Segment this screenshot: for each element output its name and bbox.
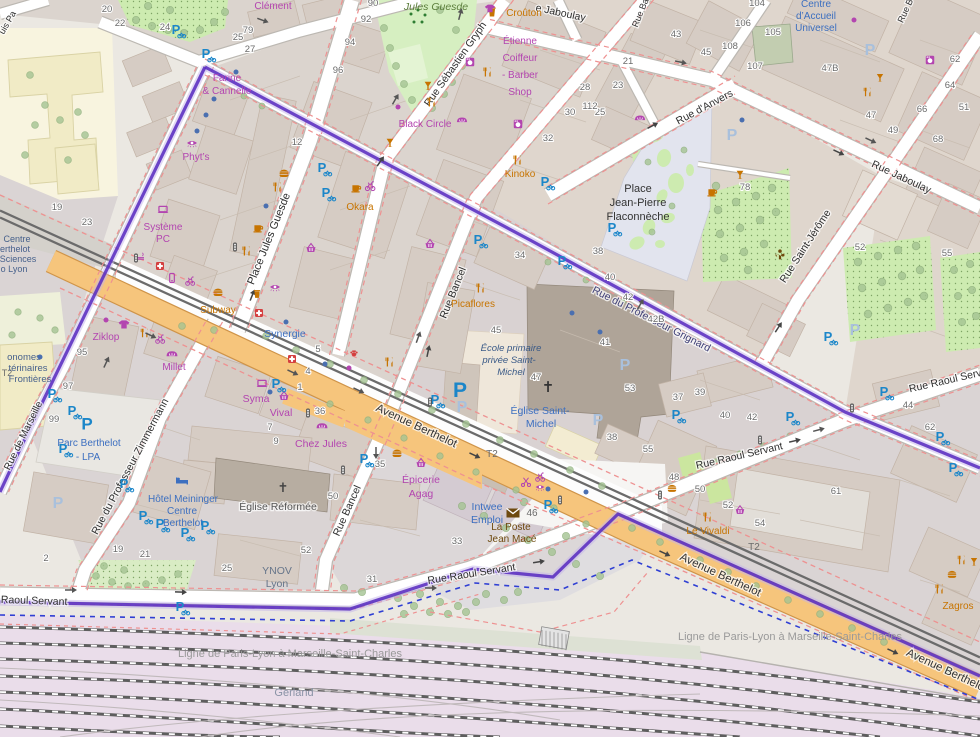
svg-text:23: 23 — [613, 80, 624, 91]
svg-text:48: 48 — [669, 472, 680, 483]
svg-text:43: 43 — [671, 29, 682, 40]
svg-text:19: 19 — [52, 202, 63, 213]
svg-text:25: 25 — [233, 32, 244, 43]
svg-text:Raoul Servant: Raoul Servant — [1, 594, 68, 608]
svg-text:61: 61 — [831, 486, 842, 497]
svg-text:Subway: Subway — [200, 305, 236, 316]
svg-text:42B: 42B — [648, 314, 665, 325]
svg-text:47B: 47B — [822, 63, 839, 74]
svg-text:P: P — [457, 399, 468, 416]
svg-text:104: 104 — [749, 0, 765, 9]
svg-text:onomes: onomes — [7, 352, 41, 363]
svg-text:32: 32 — [543, 133, 554, 144]
svg-text:Intwee: Intwee — [472, 501, 503, 513]
svg-text:12: 12 — [292, 137, 303, 148]
svg-text:38: 38 — [607, 432, 618, 443]
svg-text:Lyon: Lyon — [266, 578, 289, 590]
svg-text:64: 64 — [945, 80, 956, 91]
svg-text:Kinoko: Kinoko — [505, 169, 536, 180]
svg-text:Michel: Michel — [497, 367, 525, 378]
svg-text:99: 99 — [49, 414, 60, 425]
svg-text:21: 21 — [140, 549, 151, 560]
svg-text:Clément: Clément — [254, 1, 291, 12]
svg-text:4: 4 — [305, 366, 310, 377]
svg-text:47: 47 — [866, 110, 877, 121]
svg-text:Picaflores: Picaflores — [451, 299, 495, 310]
svg-text:P: P — [53, 495, 64, 512]
svg-text:Ligne de Paris-Lyon à Marseill: Ligne de Paris-Lyon à Marseille-Saint-Ch… — [178, 648, 402, 660]
svg-text:19: 19 — [113, 544, 124, 555]
svg-text:31: 31 — [367, 574, 378, 585]
svg-text:Centre: Centre — [3, 234, 30, 244]
svg-text:79: 79 — [243, 25, 254, 36]
svg-text:46: 46 — [526, 508, 538, 519]
svg-text:École primaire: École primaire — [481, 343, 542, 354]
svg-text:Phyt’s: Phyt’s — [182, 152, 209, 163]
svg-text:105: 105 — [765, 27, 781, 38]
svg-text:20: 20 — [102, 4, 113, 15]
svg-text:34: 34 — [515, 250, 526, 261]
svg-text:41: 41 — [600, 337, 611, 348]
svg-text:✝: ✝ — [278, 480, 289, 495]
svg-text:Système: Système — [144, 222, 183, 233]
svg-text:35: 35 — [375, 459, 386, 470]
svg-text:51: 51 — [959, 102, 970, 113]
svg-text:37: 37 — [673, 392, 684, 403]
svg-text:Gerland: Gerland — [274, 687, 313, 699]
svg-text:Étienne: Étienne — [503, 34, 537, 47]
svg-text:25: 25 — [222, 563, 233, 574]
svg-text:96: 96 — [333, 65, 344, 76]
svg-text:Michel: Michel — [526, 418, 556, 430]
svg-text:- LPA: - LPA — [76, 452, 101, 463]
svg-text:La Poste: La Poste — [491, 522, 531, 533]
svg-text:Frontières: Frontières — [9, 374, 52, 385]
svg-text:36: 36 — [315, 406, 326, 417]
svg-text:P: P — [81, 414, 92, 433]
svg-text:52: 52 — [301, 545, 312, 556]
svg-text:Chez Jules: Chez Jules — [295, 438, 347, 450]
svg-text:Coiffeur: Coiffeur — [503, 53, 539, 64]
svg-text:Shop: Shop — [508, 87, 532, 98]
svg-text:T2: T2 — [486, 449, 498, 460]
svg-text:107: 107 — [747, 61, 763, 72]
svg-text:erthelot: erthelot — [0, 244, 31, 254]
svg-text:Centre: Centre — [801, 0, 831, 10]
svg-text:Église Réformée: Église Réformée — [239, 500, 317, 513]
svg-text:Vival: Vival — [270, 407, 293, 419]
svg-text:Millet: Millet — [162, 362, 186, 373]
svg-text:78: 78 — [740, 182, 751, 193]
svg-text:Épicerie: Épicerie — [402, 473, 440, 486]
svg-text:30: 30 — [565, 107, 576, 118]
svg-text:38: 38 — [593, 246, 604, 257]
svg-text:55: 55 — [942, 248, 953, 259]
svg-text:Synergie: Synergie — [264, 328, 306, 340]
svg-text:5: 5 — [315, 344, 320, 355]
svg-text:Jean-Pierre: Jean-Pierre — [610, 197, 667, 209]
svg-text:50: 50 — [328, 491, 339, 502]
svg-text:97: 97 — [63, 381, 74, 392]
svg-text:PC: PC — [156, 234, 170, 245]
svg-text:21: 21 — [623, 56, 634, 67]
svg-text:Croûton: Croûton — [506, 8, 542, 19]
svg-text:42: 42 — [747, 412, 758, 423]
svg-text:privée Saint-: privée Saint- — [481, 355, 535, 366]
svg-text:55: 55 — [643, 444, 654, 455]
svg-text:45: 45 — [701, 47, 712, 58]
svg-text:47: 47 — [531, 372, 542, 383]
svg-text:Ligne de Paris-Lyon à Marseill: Ligne de Paris-Lyon à Marseille-Saint-Ch… — [678, 631, 902, 643]
svg-text:95: 95 — [77, 347, 88, 358]
svg-text:112: 112 — [582, 101, 597, 112]
svg-text:2: 2 — [43, 553, 48, 564]
svg-text:YNOV: YNOV — [262, 565, 292, 577]
svg-text:P: P — [620, 357, 631, 374]
svg-text:45: 45 — [491, 325, 502, 336]
svg-text:Hôtel Meininger: Hôtel Meininger — [148, 494, 219, 505]
svg-text:40: 40 — [605, 272, 616, 283]
svg-text:62: 62 — [950, 54, 961, 65]
svg-text:✝: ✝ — [542, 379, 555, 396]
svg-text:53: 53 — [625, 383, 636, 394]
svg-text:P: P — [850, 322, 861, 339]
svg-text:27: 27 — [245, 44, 256, 55]
svg-text:d’Accueil: d’Accueil — [796, 11, 836, 22]
svg-text:52: 52 — [723, 500, 734, 511]
svg-text:22: 22 — [115, 18, 126, 29]
svg-text:Okara: Okara — [346, 202, 374, 213]
svg-text:90: 90 — [368, 0, 379, 9]
svg-text:Sciences: Sciences — [0, 254, 37, 264]
svg-text:23: 23 — [82, 217, 93, 228]
svg-text:Zagros: Zagros — [942, 601, 973, 612]
svg-text:108: 108 — [722, 41, 738, 52]
svg-text:24: 24 — [160, 22, 171, 33]
svg-text:T2: T2 — [748, 542, 760, 553]
svg-text:9: 9 — [273, 436, 278, 447]
svg-text:térinaires: térinaires — [8, 363, 47, 374]
svg-text:Place: Place — [624, 183, 652, 195]
svg-text:1: 1 — [297, 382, 302, 393]
svg-text:28: 28 — [580, 82, 591, 93]
svg-text:Syma: Syma — [243, 393, 270, 405]
svg-text:68: 68 — [933, 134, 944, 145]
svg-text:Ziklop: Ziklop — [93, 332, 120, 343]
svg-text:Le Vivaldi: Le Vivaldi — [686, 526, 729, 537]
svg-text:92: 92 — [361, 14, 372, 25]
svg-text:94: 94 — [345, 37, 356, 48]
svg-text:Black Circle: Black Circle — [399, 119, 452, 130]
svg-text:Centre: Centre — [167, 506, 197, 517]
svg-text:50: 50 — [695, 484, 706, 495]
svg-text:54: 54 — [755, 518, 766, 529]
svg-text:39: 39 — [695, 387, 706, 398]
svg-text:33: 33 — [452, 536, 463, 547]
svg-text:40: 40 — [720, 410, 731, 421]
svg-text:Jules Guesde: Jules Guesde — [403, 1, 468, 13]
svg-text:42: 42 — [623, 292, 634, 303]
svg-text:P: P — [727, 127, 738, 144]
svg-text:49: 49 — [888, 125, 899, 136]
svg-text:7: 7 — [267, 422, 272, 433]
svg-text:- Barber: - Barber — [502, 70, 539, 81]
svg-text:44: 44 — [903, 400, 914, 411]
svg-text:Église Saint-: Église Saint- — [511, 404, 570, 417]
svg-text:62: 62 — [925, 422, 936, 433]
svg-text:P: P — [593, 412, 604, 429]
svg-text:Farine: Farine — [213, 73, 242, 84]
svg-text:P: P — [865, 42, 876, 59]
svg-text:Universel: Universel — [795, 23, 837, 34]
svg-text:Agag: Agag — [409, 488, 434, 500]
svg-text:o Lyon: o Lyon — [1, 264, 28, 274]
svg-text:106: 106 — [735, 18, 751, 29]
svg-text:& Cannelle: & Cannelle — [203, 86, 252, 97]
svg-text:Jean Macé: Jean Macé — [488, 534, 537, 545]
svg-text:66: 66 — [917, 104, 928, 115]
svg-text:52: 52 — [855, 242, 866, 253]
